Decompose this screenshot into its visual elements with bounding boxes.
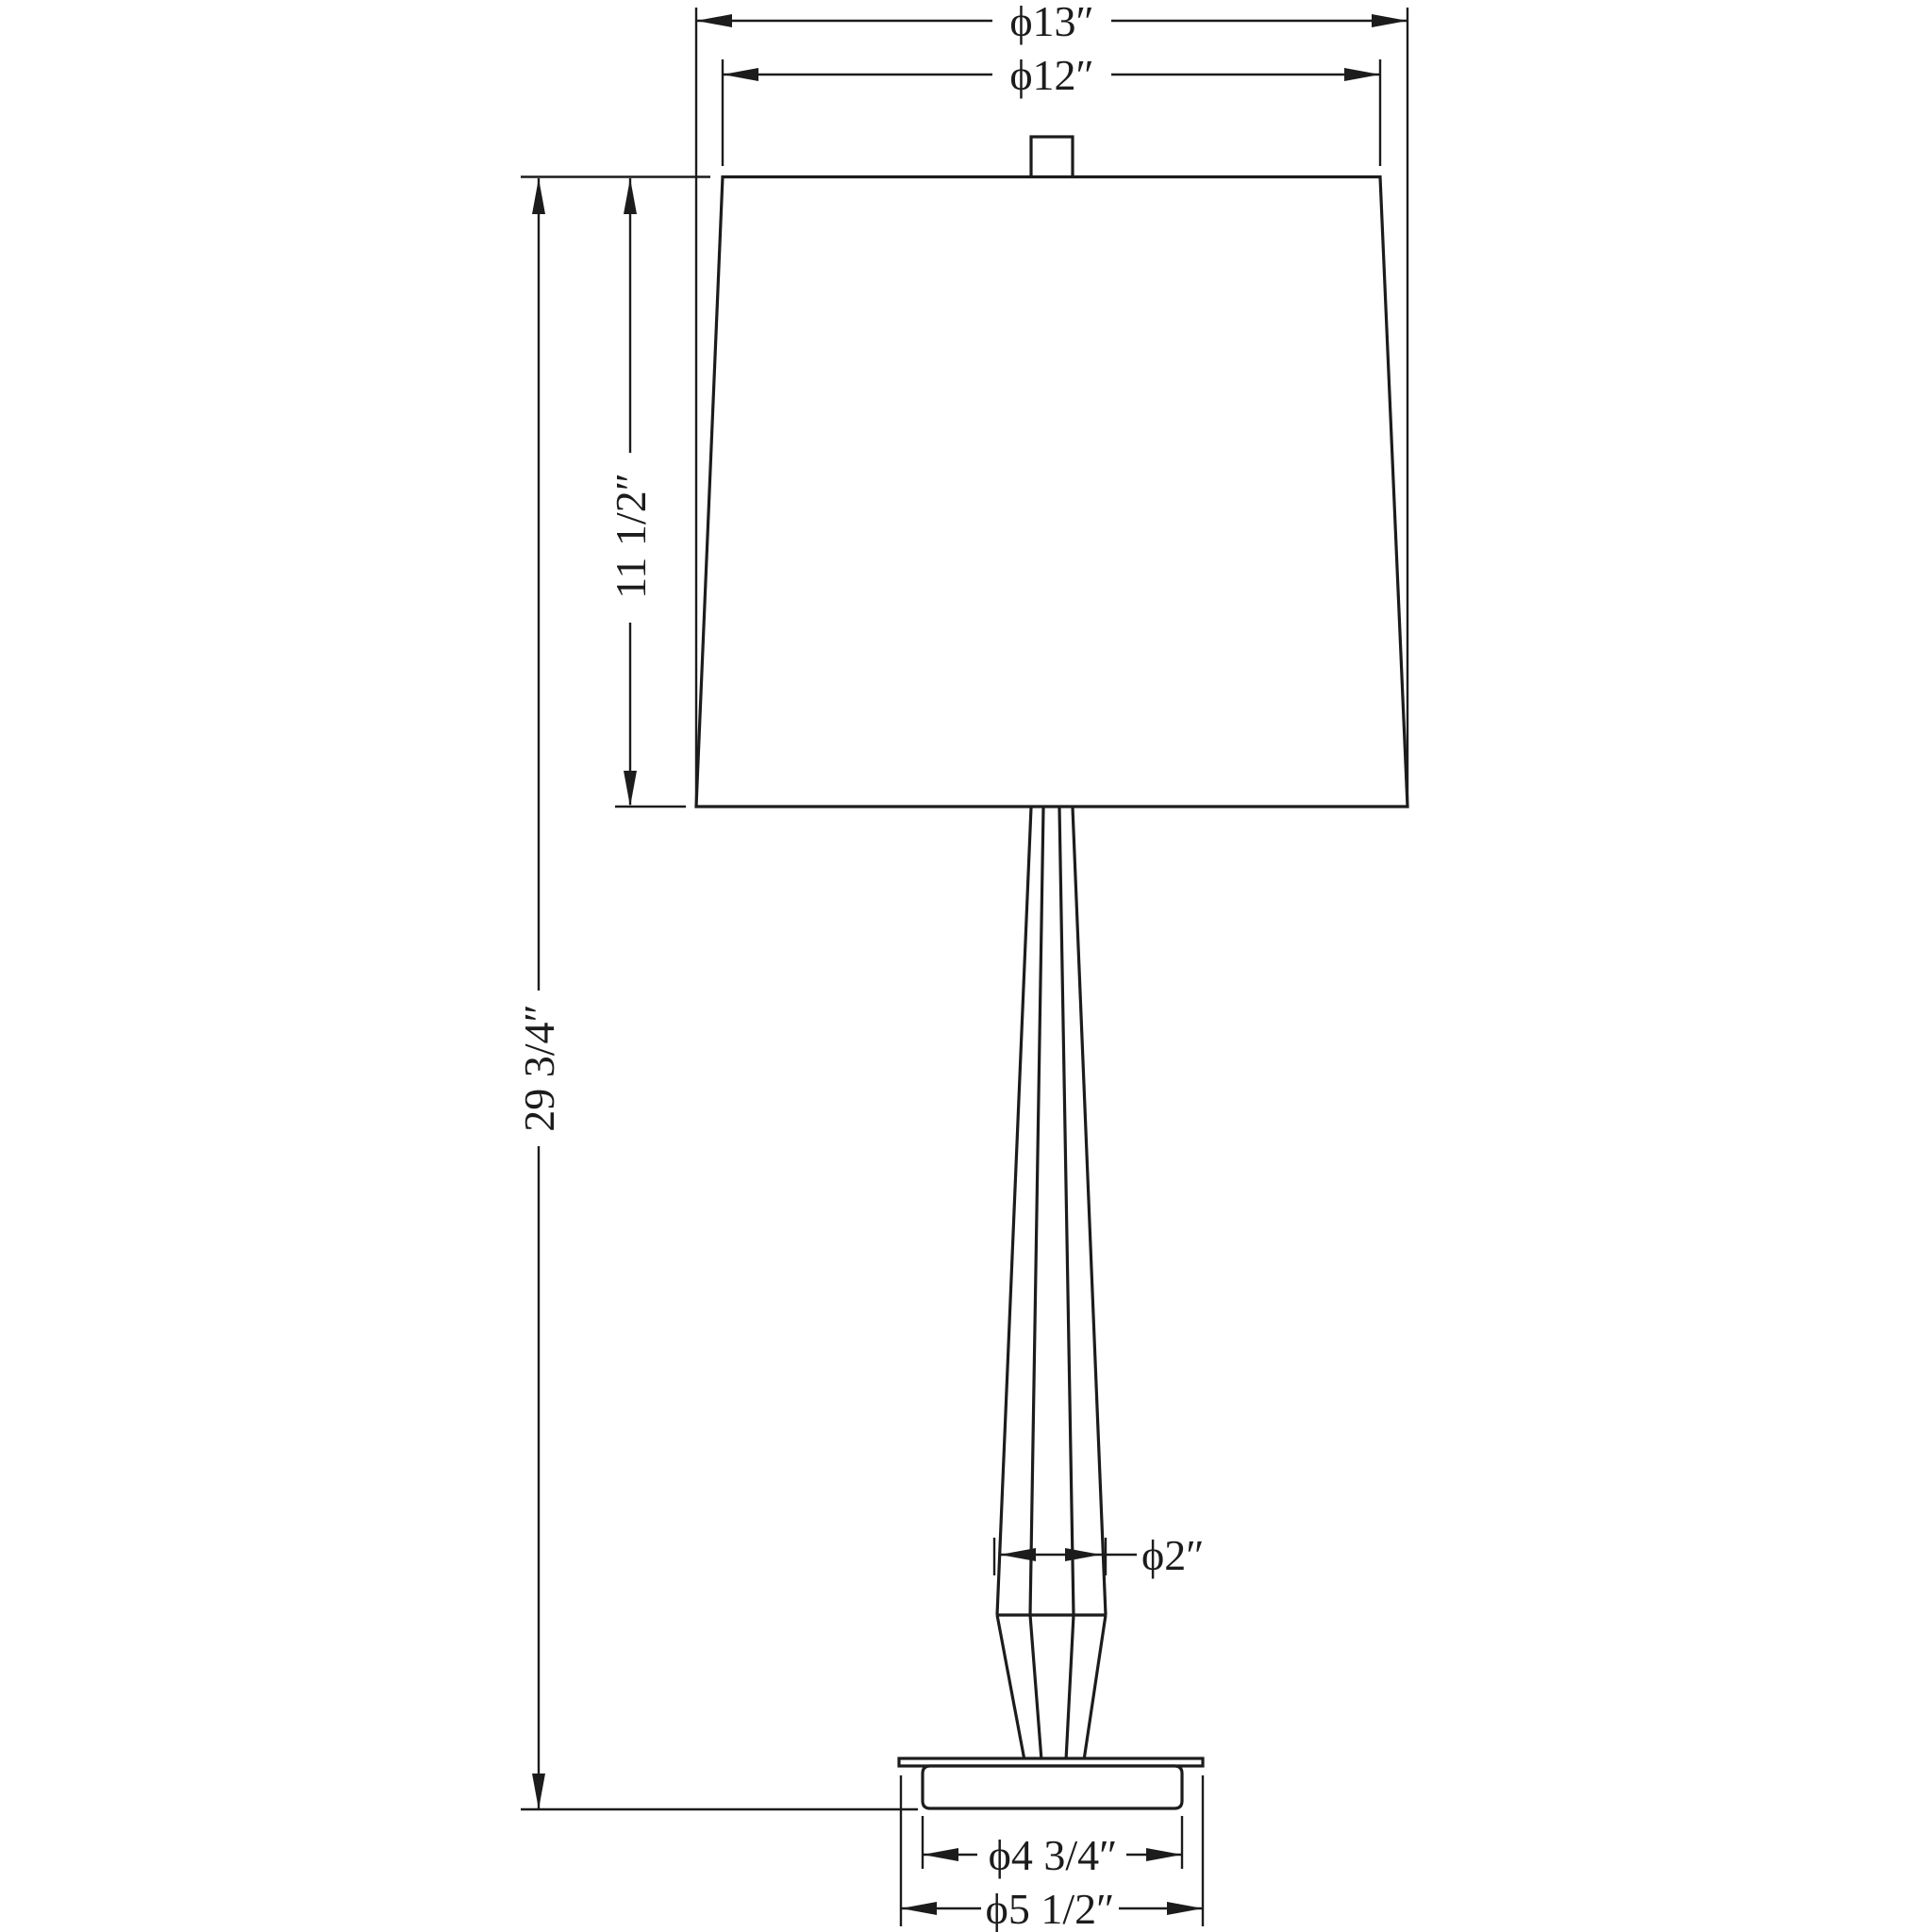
dim-stem-diameter-label: ϕ2″ [1141, 1531, 1204, 1579]
drawing-canvas: ϕ13″ ϕ12″ 29 3/4″ 11 1/2″ ϕ2″ [0, 0, 1932, 1932]
dim-shade-bottom-diameter-label: ϕ13″ [1009, 0, 1093, 45]
dim-base-plate-diameter-label: ϕ5 1/2″ [986, 1885, 1115, 1932]
finial [1031, 137, 1073, 177]
lamp-dimension-drawing: ϕ13″ ϕ12″ 29 3/4″ 11 1/2″ ϕ2″ [0, 0, 1932, 1932]
dim-shade-height-label: 11 1/2″ [607, 473, 655, 599]
dim-base-body-diameter-label: ϕ4 3/4″ [989, 1831, 1118, 1879]
base-body [923, 1766, 1182, 1808]
dim-overall-height-label: 29 3/4″ [515, 1004, 563, 1131]
lamp-shade [696, 177, 1407, 808]
lamp-base [899, 1758, 1203, 1808]
dim-shade-top-diameter-label: ϕ12″ [1009, 51, 1093, 99]
